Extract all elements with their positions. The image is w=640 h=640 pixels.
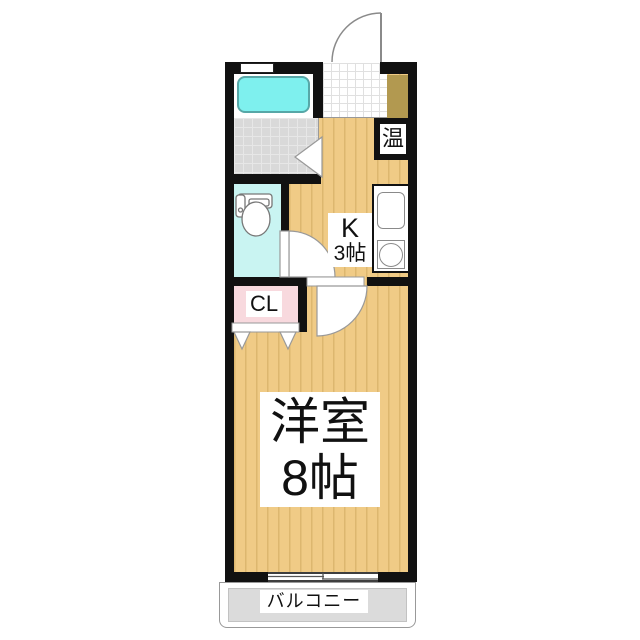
entrance-genkan-tile [323, 63, 387, 118]
balcony-label: バルコニー [260, 590, 368, 613]
toilet-room [234, 184, 281, 277]
closet-label: CL [246, 291, 282, 317]
shoe-storage-area [387, 75, 408, 118]
wall-closet-right [298, 286, 307, 332]
wall-bath-toilet-divider [234, 174, 321, 184]
wall-closet-top [234, 277, 307, 286]
wall-bottom-right [378, 572, 417, 582]
wall-bottom-left [225, 572, 268, 582]
water-heater-label: 温 [380, 124, 406, 154]
water-heater-box: 温 [374, 118, 412, 160]
entrance-door [332, 13, 381, 62]
wall-bathroom-right [313, 62, 323, 118]
stove-burner-icon [379, 243, 403, 267]
main-room-label-line1: 洋室 [270, 394, 370, 451]
kitchen-stove [377, 240, 405, 269]
wall-left [225, 62, 234, 582]
main-room-label-line2: 8帖 [281, 451, 359, 506]
main-room-label: 洋室 8帖 [260, 392, 380, 507]
balcony-sliding-window [268, 572, 378, 582]
bathtub [237, 76, 310, 113]
kitchen-label-line2: 3帖 [334, 242, 367, 266]
bathroom-floor [234, 118, 319, 174]
kitchen-label-line1: K [341, 214, 359, 242]
wall-toilet-right [281, 184, 289, 231]
kitchen-sink [377, 192, 405, 229]
kitchen-label: K 3帖 [328, 213, 372, 267]
wall-kitchen-room-divider [367, 277, 408, 286]
bathroom-window [240, 63, 274, 73]
floor-plan-page: { "labels": { "kitchen_line1": "K", "kit… [0, 0, 640, 640]
